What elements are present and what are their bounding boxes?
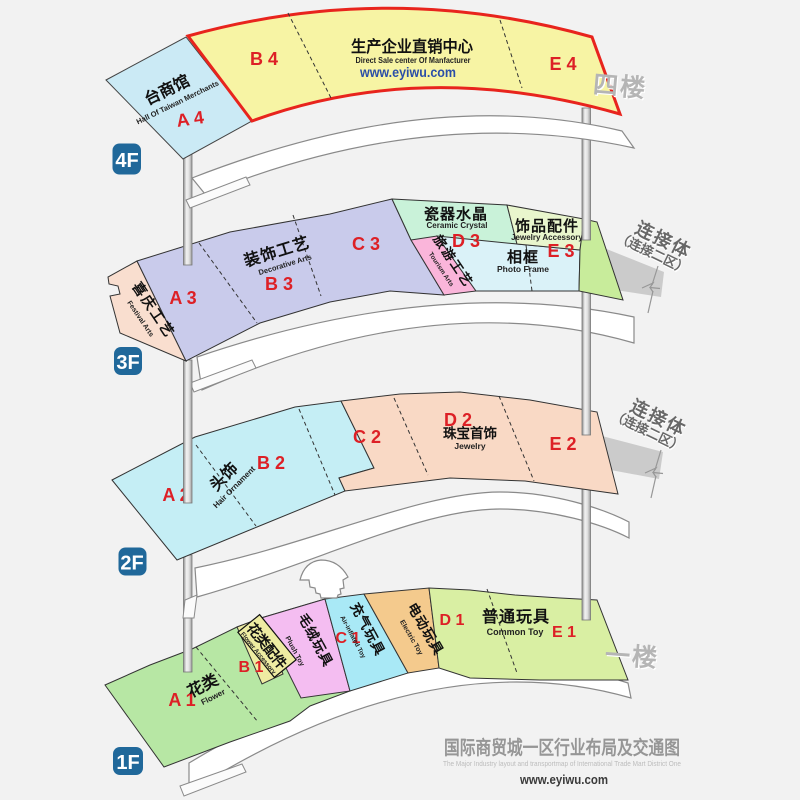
svg-text:A 4: A 4 — [175, 107, 205, 131]
svg-text:A 3: A 3 — [169, 288, 196, 308]
svg-text:B 2: B 2 — [257, 453, 285, 473]
svg-text:Ceramic Crystal: Ceramic Crystal — [427, 221, 488, 230]
svg-text:Common Toy: Common Toy — [487, 627, 544, 637]
svg-text:www.eyiwu.com: www.eyiwu.com — [359, 65, 456, 80]
svg-text:B 1: B 1 — [239, 659, 264, 676]
svg-text:E 3: E 3 — [547, 241, 574, 261]
svg-text:www.eyiwu.com: www.eyiwu.com — [519, 772, 608, 787]
svg-text:一楼: 一楼 — [604, 641, 660, 673]
svg-text:Photo Frame: Photo Frame — [497, 264, 549, 274]
svg-text:E 4: E 4 — [549, 54, 576, 74]
svg-text:珠宝首饰: 珠宝首饰 — [443, 425, 497, 441]
svg-text:E 2: E 2 — [549, 434, 576, 454]
svg-text:Jewelry: Jewelry — [454, 441, 485, 451]
svg-text:生产企业直销中心: 生产企业直销中心 — [351, 37, 473, 56]
svg-text:The Major Industry layout and: The Major Industry layout and transportm… — [443, 759, 681, 768]
svg-text:1F: 1F — [116, 752, 139, 774]
svg-text:D 1: D 1 — [440, 612, 465, 629]
svg-text:D 3: D 3 — [452, 231, 480, 251]
svg-text:国际商贸城一区行业布局及交通图: 国际商贸城一区行业布局及交通图 — [444, 736, 680, 759]
svg-text:4F: 4F — [115, 150, 138, 172]
svg-text:普通玩具: 普通玩具 — [482, 607, 550, 626]
svg-text:Direct Sale center Of Manfactu: Direct Sale center Of Manfacturer — [356, 55, 472, 65]
svg-text:3F: 3F — [116, 352, 139, 374]
svg-text:C 3: C 3 — [352, 234, 380, 254]
svg-text:E 1: E 1 — [552, 624, 576, 641]
svg-text:2F: 2F — [120, 553, 143, 575]
svg-text:B 4: B 4 — [250, 49, 278, 69]
svg-text:C 2: C 2 — [353, 427, 381, 447]
svg-text:B 3: B 3 — [265, 274, 293, 294]
svg-text:四楼: 四楼 — [592, 71, 648, 104]
